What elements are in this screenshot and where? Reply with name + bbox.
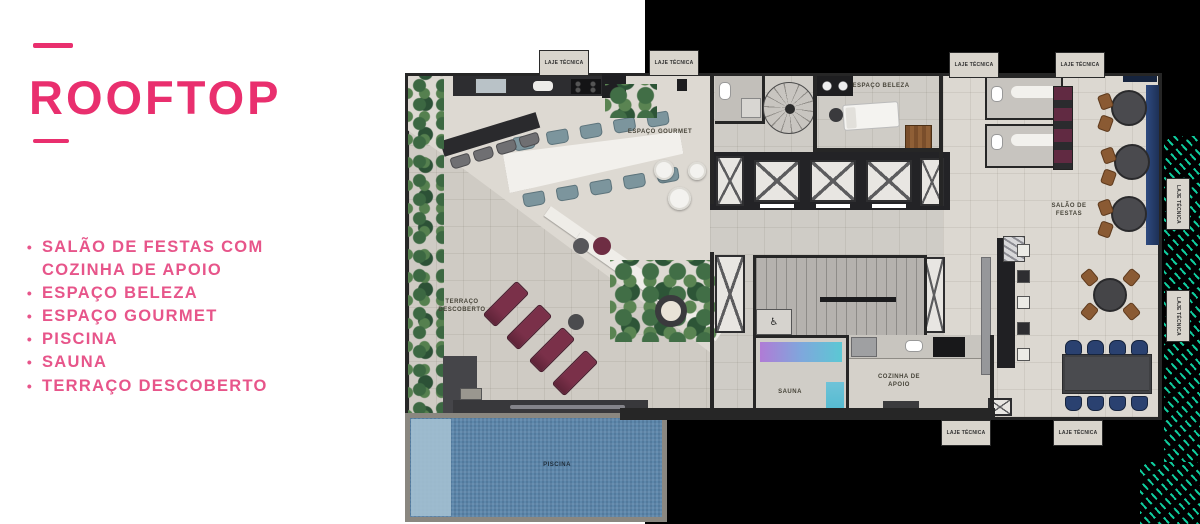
- bullet-icon: •: [25, 351, 35, 374]
- round-table: [1093, 278, 1127, 312]
- elevator-door: [760, 204, 794, 208]
- wall: [710, 252, 714, 417]
- stacked-chairs: [1053, 86, 1073, 170]
- laje-tecnica-tag: LAJE TÉCNICA: [649, 50, 699, 76]
- amenity-label: SALÃO DE FESTAS COM COZINHA DE APOIO: [42, 236, 325, 282]
- wheelchair-icon: ♿: [770, 317, 779, 328]
- dining-chair-navy: [1087, 340, 1104, 355]
- laje-tecnica-tag: LAJE TÉCNICA: [539, 50, 589, 76]
- sink-counter: [1011, 86, 1059, 98]
- pouf: [688, 162, 706, 180]
- bathroom: [715, 76, 765, 124]
- side-chair: [472, 146, 495, 163]
- pouf-gray: [573, 238, 589, 254]
- page-title: ROOFTOP: [29, 70, 282, 125]
- amenity-item: •ESPAÇO BELEZA: [25, 282, 325, 305]
- elevator-car: [810, 160, 856, 202]
- bar-stool: [1017, 270, 1030, 283]
- dining-chair-navy: [1087, 396, 1104, 411]
- wall: [620, 408, 995, 420]
- bullet-icon: •: [25, 305, 35, 328]
- amenity-item: •SALÃO DE FESTAS COM COZINHA DE APOIO: [25, 236, 325, 282]
- amenity-label: SAUNA: [42, 351, 107, 374]
- pool-shower: [460, 388, 482, 400]
- side-table: [568, 314, 584, 330]
- amenity-item: •ESPAÇO GOURMET: [25, 305, 325, 328]
- glass-door: [475, 78, 507, 94]
- amenity-label: ESPAÇO GOURMET: [42, 305, 218, 328]
- amenity-item: •TERRAÇO DESCOBERTO: [25, 375, 325, 398]
- dining-table: [1062, 354, 1152, 394]
- bullet-icon: •: [25, 375, 35, 398]
- spiral-staircase: [763, 82, 815, 134]
- fridge: [851, 337, 877, 357]
- sauna-room: [753, 335, 849, 418]
- elevator-door: [872, 204, 906, 208]
- wall: [813, 148, 939, 152]
- elevator-car: [754, 160, 800, 202]
- cooktop: [933, 337, 965, 357]
- rooftop-floorplan-page: ROOFTOP •SALÃO DE FESTAS COM COZINHA DE …: [0, 0, 1200, 524]
- fire-table: [655, 295, 687, 327]
- sink: [905, 340, 923, 352]
- amenity-label: TERRAÇO DESCOBERTO: [42, 375, 268, 398]
- shaft: [716, 156, 744, 206]
- dining-chair: [546, 128, 570, 146]
- pool-shallow-ledge: [411, 419, 451, 516]
- spiral-center: [785, 104, 795, 114]
- room-label-terraco-descoberto: TERRAÇO DESCOBERTO: [430, 298, 494, 314]
- room-label-salao-de-festas: SALÃO DE FESTAS: [1046, 202, 1092, 218]
- stair-rail: [820, 297, 896, 302]
- amenity-item: •PISCINA: [25, 328, 325, 351]
- room-label-espaco-gourmet: ESPAÇO GOURMET: [628, 128, 692, 136]
- room-label-piscina: PISCINA: [543, 461, 571, 469]
- room-label-sauna: SAUNA: [778, 388, 802, 396]
- round-table: [1111, 90, 1147, 126]
- room-label-cozinha-de-apoio: COZINHA DE APOIO: [871, 373, 927, 389]
- bullet-icon: •: [25, 236, 35, 282]
- tv-panel: [1123, 76, 1157, 82]
- toilet: [719, 82, 731, 100]
- shower-stall: [741, 98, 761, 118]
- beleza-sink-counter: [817, 76, 853, 96]
- toilet: [991, 86, 1003, 102]
- amenity-label: ESPAÇO BELEZA: [42, 282, 198, 305]
- amenity-label: PISCINA: [42, 328, 118, 351]
- bathroom: [985, 76, 1063, 120]
- laje-tecnica-tag: LAJE TÉCNICA: [1166, 290, 1190, 342]
- round-table: [1114, 144, 1150, 180]
- main-staircase: ♿: [753, 255, 927, 335]
- wall: [710, 76, 714, 204]
- wall-switch: [677, 79, 687, 91]
- laje-tecnica-tag: LAJE TÉCNICA: [1166, 178, 1190, 230]
- stool: [829, 108, 843, 122]
- wood-bench: [905, 125, 932, 150]
- side-chair: [449, 153, 472, 170]
- dining-chair-navy: [1131, 340, 1148, 355]
- round-table: [1111, 196, 1147, 232]
- pouf-maroon: [593, 237, 611, 255]
- floorplan: ♿: [405, 52, 1200, 524]
- side-chair: [518, 132, 541, 149]
- title-dash-bottom: [33, 139, 69, 143]
- shaft: [715, 255, 745, 333]
- side-chair: [495, 139, 518, 156]
- amenities-list: •SALÃO DE FESTAS COM COZINHA DE APOIO •E…: [25, 236, 325, 398]
- laje-tecnica-tag: LAJE TÉCNICA: [941, 420, 991, 446]
- elevator-door: [816, 204, 850, 208]
- sink-counter: [1011, 134, 1059, 146]
- pouf: [654, 160, 674, 180]
- dining-chair-navy: [1065, 340, 1082, 355]
- sink: [533, 81, 553, 91]
- laje-tecnica-tag: LAJE TÉCNICA: [1055, 52, 1105, 78]
- bar-stool: [1017, 348, 1030, 361]
- cooktop: [571, 79, 601, 94]
- laje-tecnica-tag: LAJE TÉCNICA: [949, 52, 999, 78]
- laje-tecnica-tag: LAJE TÉCNICA: [1053, 420, 1103, 446]
- bar-stool: [1017, 244, 1030, 257]
- massage-table: [842, 101, 900, 131]
- wall: [813, 76, 817, 152]
- dining-chair: [579, 122, 603, 140]
- hedge-planting: [408, 76, 444, 414]
- accessible-wc: ♿: [756, 309, 792, 335]
- left-panel: ROOFTOP •SALÃO DE FESTAS COM COZINHA DE …: [0, 0, 400, 524]
- bar-stool: [1017, 296, 1030, 309]
- table-top: [1065, 357, 1149, 391]
- dining-chair-navy: [1065, 396, 1082, 411]
- sauna-bench-gradient: [760, 342, 842, 362]
- lap-edge-slot: [510, 405, 625, 409]
- amenity-item: •SAUNA: [25, 351, 325, 374]
- hanging-plant: [605, 84, 657, 118]
- wall: [939, 76, 943, 206]
- toilet: [991, 134, 1003, 150]
- bullet-icon: •: [25, 328, 35, 351]
- bar-stool: [1017, 322, 1030, 335]
- elevator-car: [866, 160, 912, 202]
- dining-chair-navy: [1131, 396, 1148, 411]
- elevator-core: [710, 152, 950, 210]
- bathroom: [985, 124, 1063, 168]
- title-dash-top: [33, 43, 73, 48]
- pouf: [668, 187, 691, 210]
- room-label-espaco-beleza: ESPAÇO BELEZA: [852, 82, 909, 90]
- bullet-icon: •: [25, 282, 35, 305]
- dining-chair-navy: [1109, 340, 1126, 355]
- pillow: [845, 107, 856, 129]
- dining-chair-navy: [1109, 396, 1126, 411]
